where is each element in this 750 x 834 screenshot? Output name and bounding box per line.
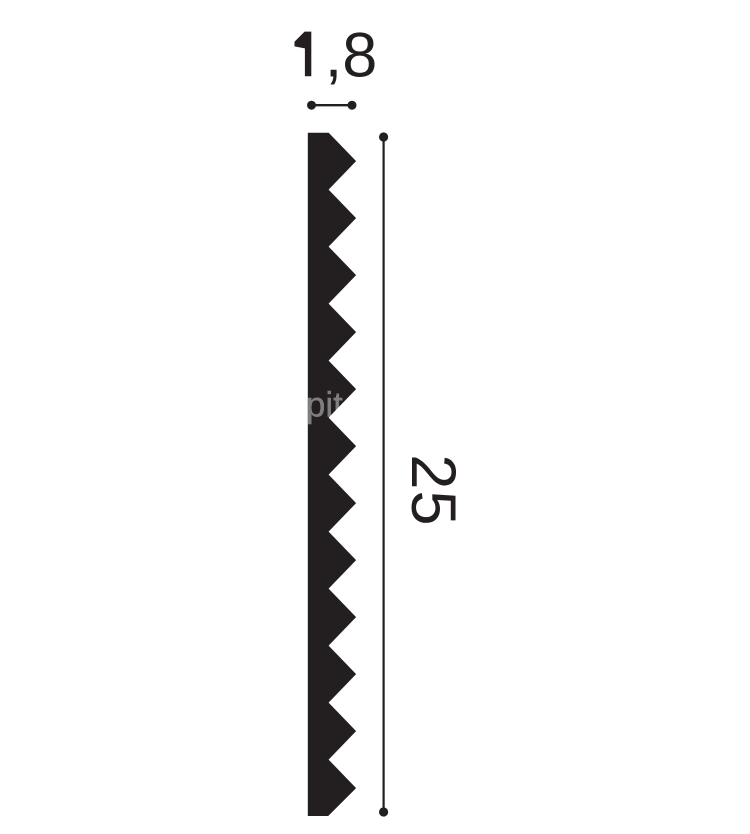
svg-text:kapitel: kapitel: [269, 385, 370, 424]
svg-text:25: 25: [398, 454, 468, 526]
svg-text:,8: ,8: [325, 20, 378, 90]
